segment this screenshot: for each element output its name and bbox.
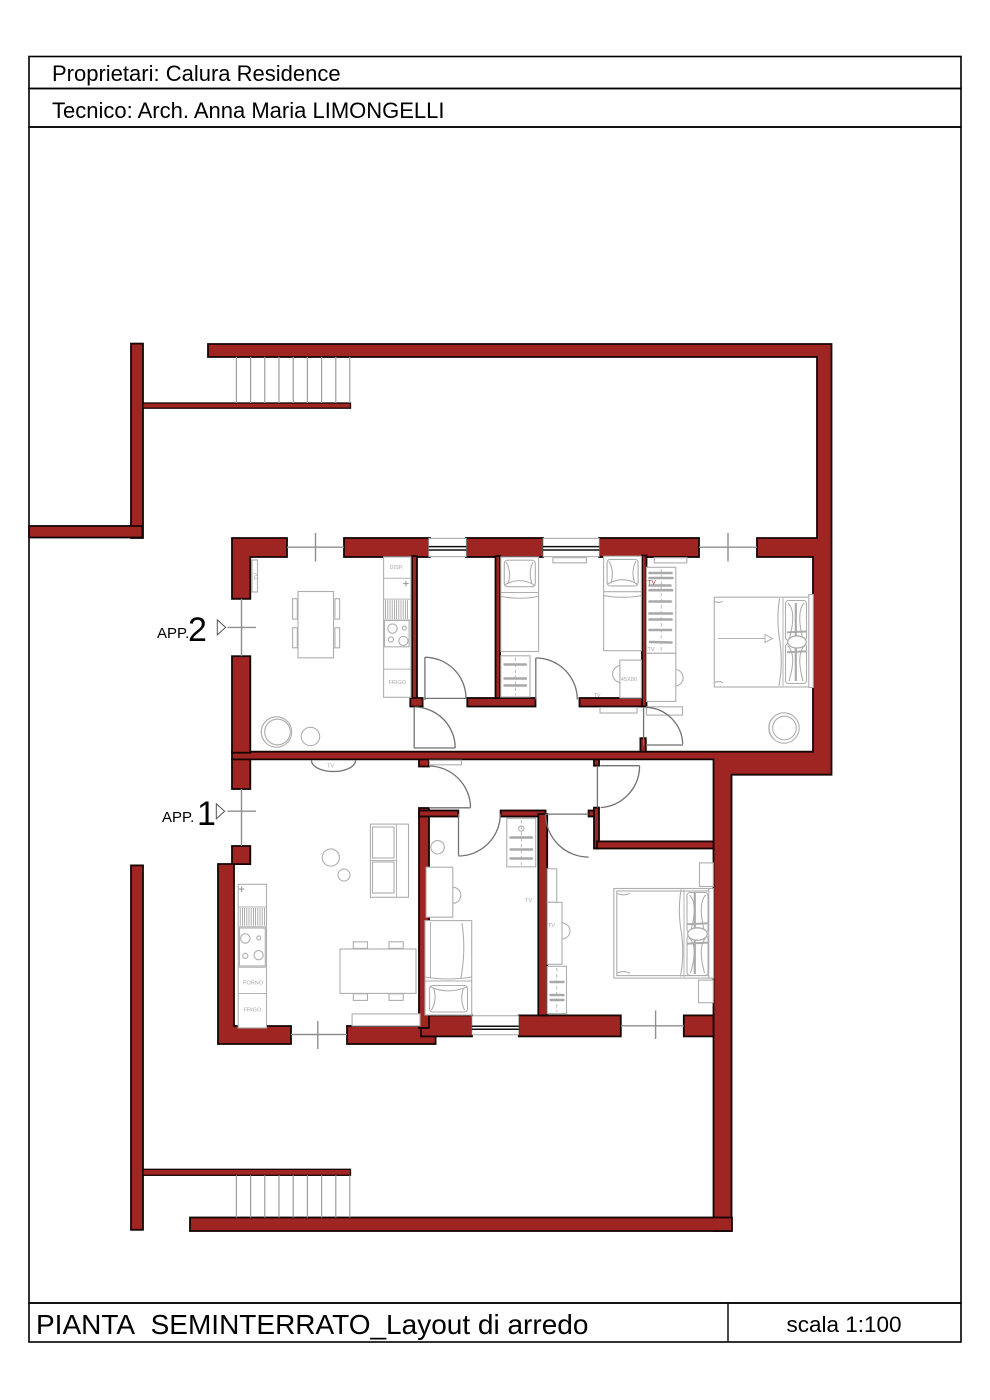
svg-text:45X80: 45X80 bbox=[621, 677, 637, 683]
svg-text:APP.: APP. bbox=[162, 809, 194, 826]
svg-text:2: 2 bbox=[188, 611, 207, 649]
svg-text:PIANTA SEMINTERRATO_Layout di: PIANTA SEMINTERRATO_Layout di arredo bbox=[36, 1309, 588, 1340]
svg-text:FRIGO: FRIGO bbox=[389, 680, 407, 686]
svg-text:FRIGO: FRIGO bbox=[244, 1008, 262, 1014]
svg-text:Tecnico: Arch. Anna Maria LIMO: Tecnico: Arch. Anna Maria LIMONGELLI bbox=[52, 98, 445, 123]
svg-text:FORNO: FORNO bbox=[243, 981, 264, 987]
svg-text:DISP.: DISP. bbox=[390, 565, 404, 571]
svg-text:TV: TV bbox=[525, 898, 532, 904]
svg-text:TV: TV bbox=[548, 923, 555, 929]
svg-text:APP.: APP. bbox=[157, 625, 189, 642]
svg-text:TV: TV bbox=[648, 647, 655, 653]
svg-text:scala 1:100: scala 1:100 bbox=[786, 1312, 901, 1337]
svg-text:TV: TV bbox=[594, 693, 601, 699]
svg-text:TV: TV bbox=[327, 764, 334, 770]
svg-text:TV: TV bbox=[254, 573, 260, 580]
svg-text:Proprietari: Calura Residence: Proprietari: Calura Residence bbox=[52, 61, 341, 86]
svg-text:1: 1 bbox=[197, 795, 216, 833]
svg-text:TV: TV bbox=[648, 580, 657, 587]
